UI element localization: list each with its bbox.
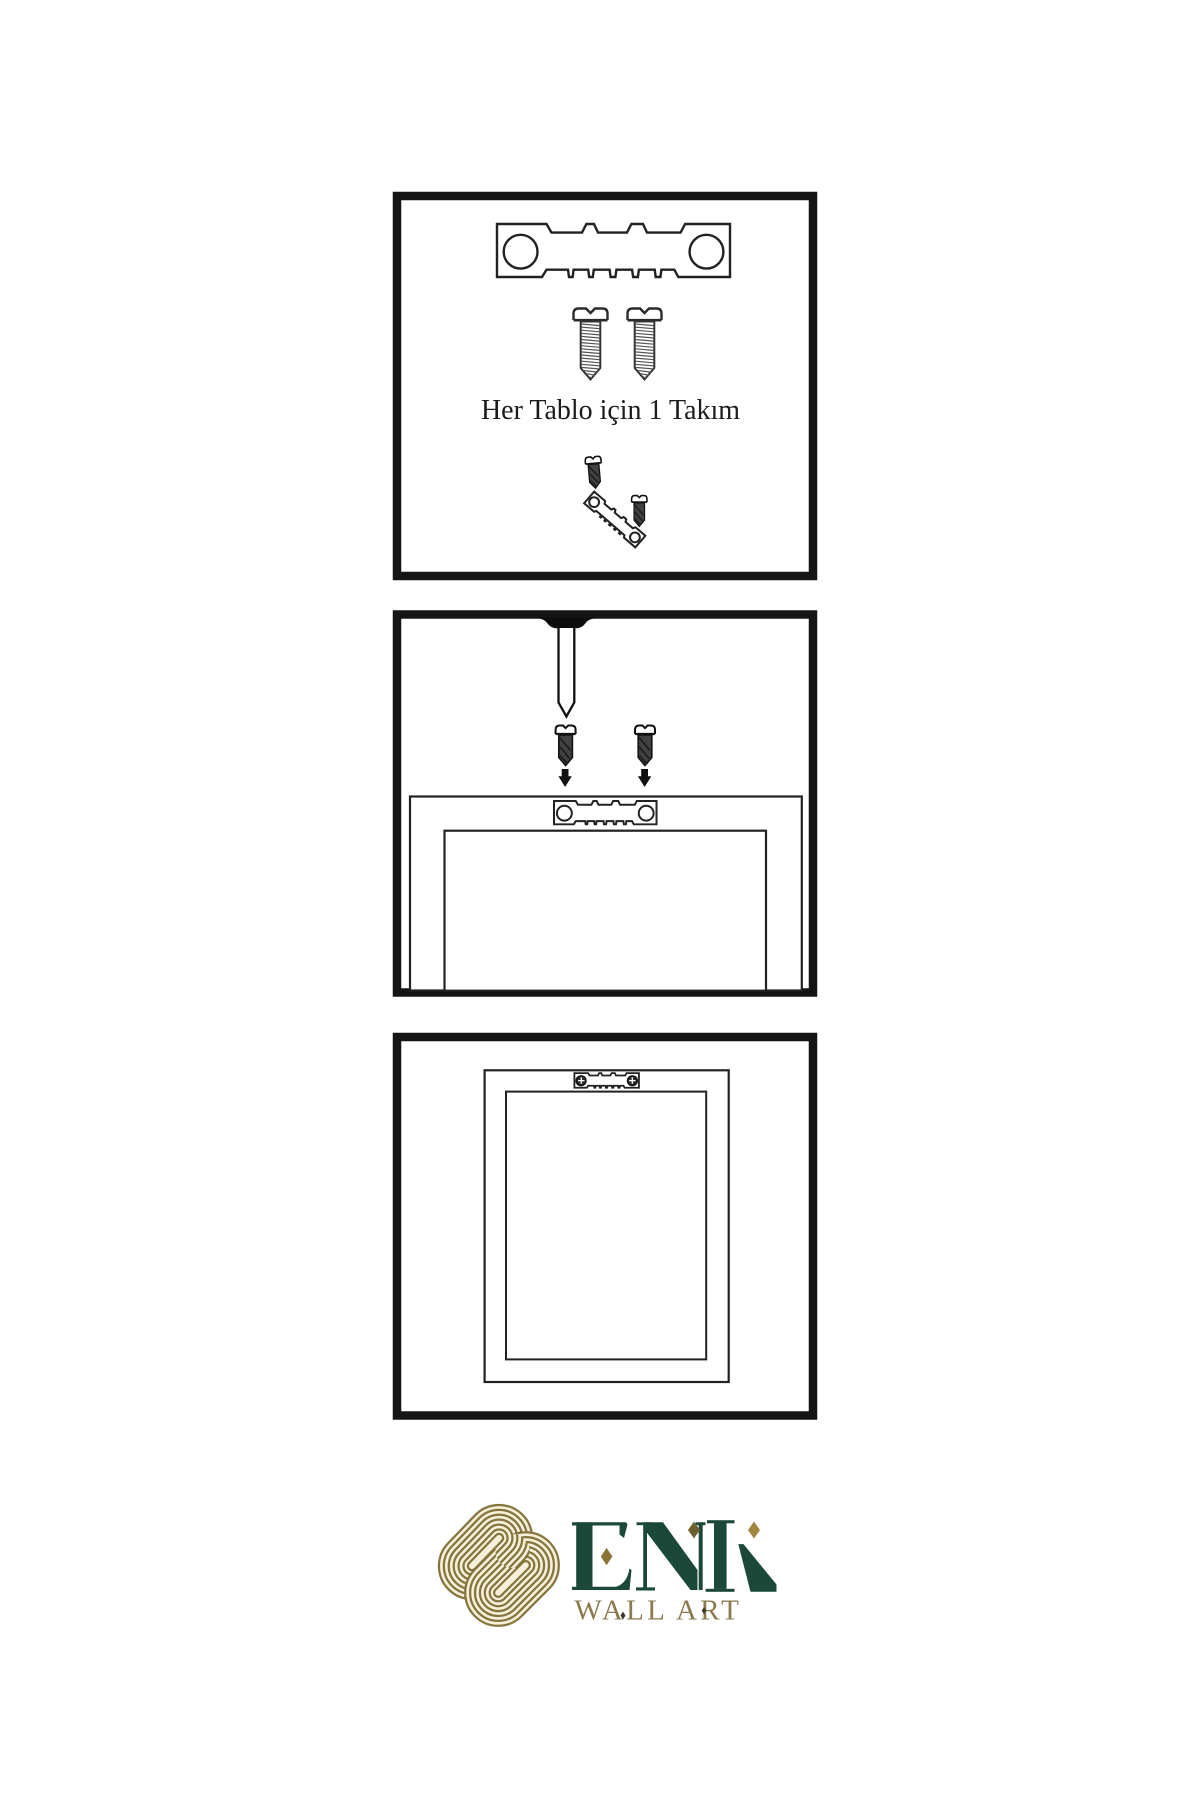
svg-text:WALL ART: WALL ART [574,1594,742,1626]
svg-text:Her Tablo için 1 Takım: Her Tablo için 1 Takım [481,394,740,426]
